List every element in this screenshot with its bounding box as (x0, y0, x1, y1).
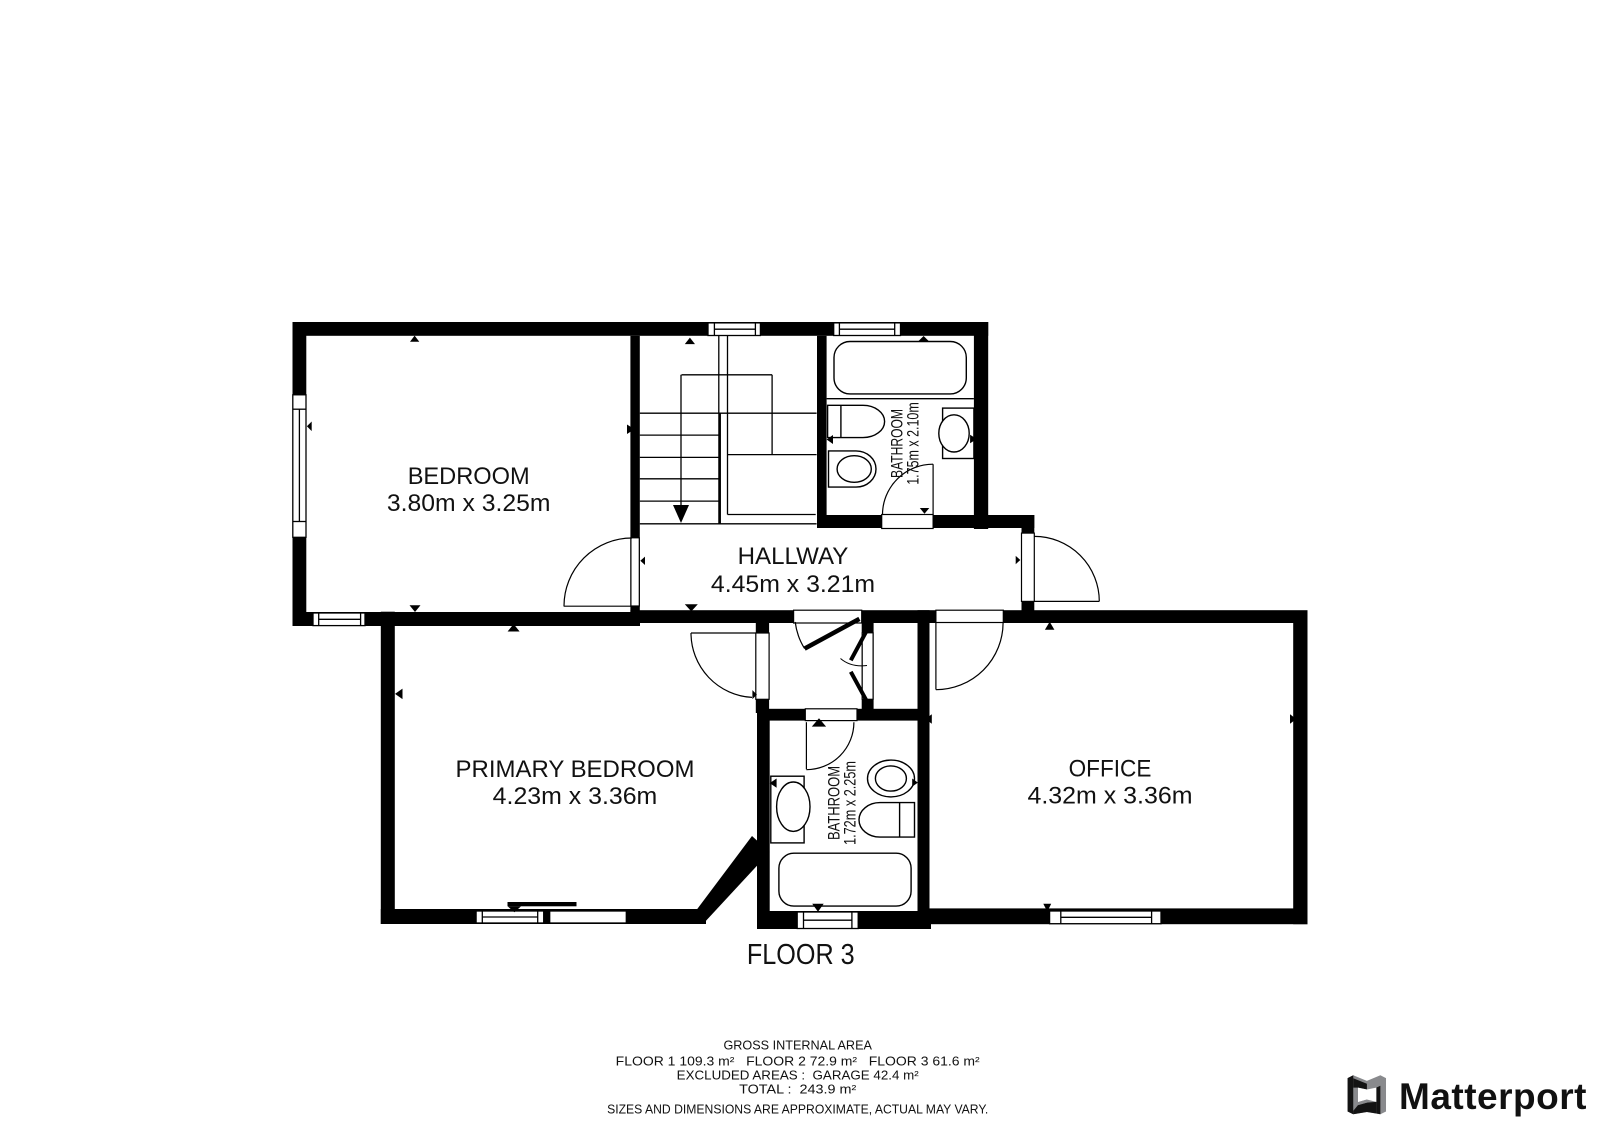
svg-text:4.23m x 3.36m: 4.23m x 3.36m (493, 783, 658, 810)
svg-text:1.75m x 2.10m: 1.75m x 2.10m (904, 402, 923, 485)
svg-text:4.32m x 3.36m: 4.32m x 3.36m (1028, 782, 1193, 809)
svg-text:GROSS INTERNAL AREA: GROSS INTERNAL AREA (723, 1038, 872, 1053)
svg-text:4.45m x 3.21m: 4.45m x 3.21m (711, 571, 875, 598)
svg-text:FLOOR 1 109.3 m² FLOOR 2 72.: FLOOR 1 109.3 m² FLOOR 2 72.9 m² FLOOR 3… (616, 1053, 981, 1068)
svg-text:3.80m x 3.25m: 3.80m x 3.25m (387, 490, 551, 517)
svg-text:EXCLUDED AREAS : GARAGE 42.4: EXCLUDED AREAS : GARAGE 42.4 m² (677, 1067, 920, 1082)
svg-text:HALLWAY: HALLWAY (738, 543, 849, 570)
svg-text:PRIMARY BEDROOM: PRIMARY BEDROOM (456, 756, 695, 783)
svg-text:BEDROOM: BEDROOM (408, 463, 530, 490)
svg-text:FLOOR 3: FLOOR 3 (747, 939, 855, 971)
svg-text:SIZES AND DIMENSIONS ARE APPRO: SIZES AND DIMENSIONS ARE APPROXIMATE, AC… (607, 1102, 988, 1117)
svg-text:TOTAL : 243.9 m²: TOTAL : 243.9 m² (739, 1081, 857, 1096)
svg-text:OFFICE: OFFICE (1069, 755, 1152, 782)
svg-text:Matterport: Matterport (1399, 1076, 1587, 1117)
svg-text:1.72m x 2.25m: 1.72m x 2.25m (841, 761, 860, 845)
